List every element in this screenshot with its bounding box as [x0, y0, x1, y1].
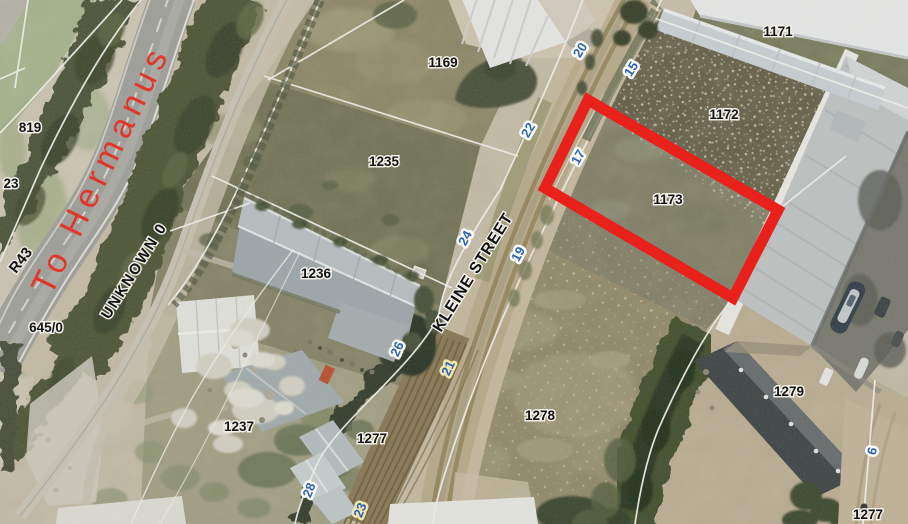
svg-text:1235: 1235 [369, 154, 400, 169]
svg-text:1237: 1237 [224, 419, 254, 434]
svg-text:1277: 1277 [357, 431, 387, 446]
svg-text:1172: 1172 [709, 107, 738, 122]
svg-text:1278: 1278 [525, 408, 556, 423]
svg-text:1277: 1277 [853, 507, 883, 522]
svg-text:1279: 1279 [774, 384, 804, 399]
svg-text:1173: 1173 [653, 192, 683, 207]
svg-text:1236: 1236 [301, 266, 332, 281]
svg-text:1171: 1171 [763, 24, 793, 39]
svg-text:819: 819 [19, 120, 42, 135]
svg-text:1169: 1169 [428, 55, 457, 70]
svg-text:645/0: 645/0 [29, 320, 63, 335]
svg-text:23: 23 [3, 176, 19, 191]
